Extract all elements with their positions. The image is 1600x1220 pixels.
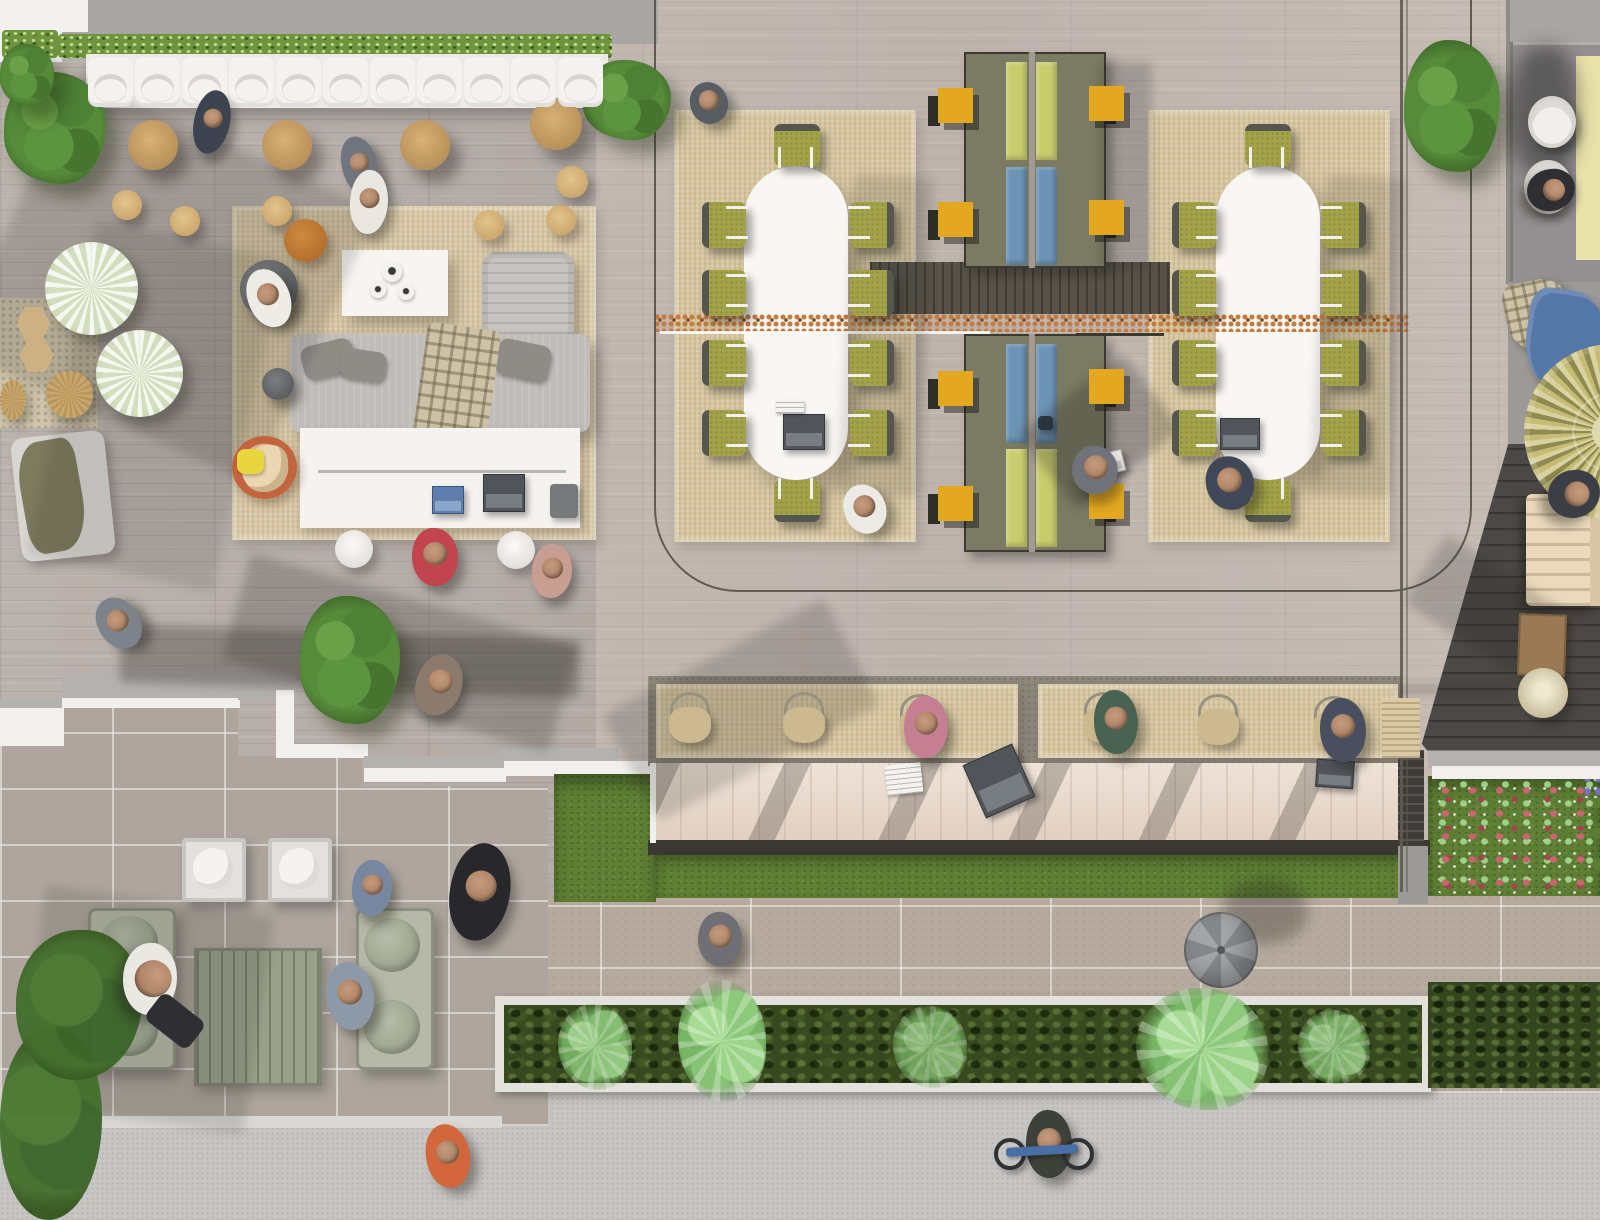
- doormat: [1382, 698, 1420, 758]
- bowl-3: [398, 284, 414, 300]
- bar-counter: [654, 763, 1402, 845]
- bench-chair-2: [135, 57, 180, 107]
- bench-chair-4: [229, 57, 274, 107]
- conference1-chair-l1: [702, 202, 746, 248]
- conference2-chair-top: [1245, 124, 1291, 166]
- conference2-chair-r2: [1322, 270, 1366, 316]
- right-room-rug: [1576, 56, 1600, 260]
- shadow-railing-h: [1398, 686, 1512, 692]
- conference2-chair-l3: [1172, 340, 1216, 386]
- yellow-stool-6: [938, 486, 973, 521]
- conference1-chair-l4: [702, 410, 746, 456]
- rattan-pouf-1: [46, 371, 93, 418]
- lounge-stool-2: [497, 531, 535, 569]
- tree-walkway: [300, 596, 400, 724]
- grass-strip: [654, 850, 1428, 898]
- terrace-stool-4: [474, 210, 504, 240]
- conference1-chair-r2: [850, 270, 894, 316]
- conference1-chair-r1: [850, 202, 894, 248]
- terrace-stool-2: [170, 206, 200, 236]
- tree-terrace-left-small: [0, 44, 54, 106]
- cafe-table-1: [128, 120, 178, 170]
- conference1-chair-r4: [850, 410, 894, 456]
- bench-chair-5: [276, 57, 321, 107]
- plaza-armchair-2: [268, 838, 332, 902]
- conference2-chair-l1: [1172, 202, 1216, 248]
- top-wall-right: [1508, 0, 1600, 44]
- person-bar-green: [1094, 690, 1138, 754]
- laptop-conference-2: [1220, 418, 1260, 450]
- dog-bed-pillow: [237, 449, 264, 474]
- yellow-stool-5: [938, 371, 973, 406]
- laptop-bar-2: [1315, 759, 1355, 790]
- conference2-chair-l2: [1172, 270, 1216, 316]
- conference1-chair-r3: [850, 340, 894, 386]
- planter-starplant-1: [558, 1004, 632, 1090]
- cafe-table-3: [400, 120, 450, 170]
- bench-chair-10: [511, 57, 556, 107]
- step-band-5: [364, 768, 506, 782]
- planter-starplant-5: [1298, 1010, 1370, 1084]
- right-step-band: [1432, 766, 1600, 779]
- yellow-stool-3: [1089, 86, 1124, 121]
- bowl-1: [382, 262, 402, 282]
- bowl-2: [370, 282, 386, 298]
- laptop-conference-1: [783, 414, 825, 450]
- table-groove: [318, 470, 566, 473]
- plaza-armchair-1: [182, 838, 246, 902]
- bike-wheel-rear: [1062, 1138, 1094, 1170]
- terrace-stool-3: [262, 196, 292, 226]
- conference1-chair-top: [774, 124, 820, 166]
- paper-bar: [885, 762, 924, 796]
- conference2-chair-r3: [1322, 340, 1366, 386]
- conference2-chair-l4: [1172, 410, 1216, 456]
- yellow-stool-7: [1089, 369, 1124, 404]
- aerial-floor-plan: [0, 0, 1600, 1220]
- person-bar-navy: [1320, 698, 1366, 762]
- right-round-table: [1518, 668, 1568, 718]
- coffee-table: [342, 250, 448, 316]
- railing-line-1: [1400, 0, 1403, 892]
- rattan-pouf-2: [0, 380, 26, 420]
- bench-chair-8: [417, 57, 462, 107]
- side-table-dark: [550, 484, 578, 518]
- laptop-lounge-blue: [432, 486, 464, 514]
- bar-chair-2: [780, 692, 828, 746]
- orange-pouf: [284, 219, 327, 262]
- planter-starplant-3: [893, 1006, 967, 1088]
- terrace-stool-5: [546, 205, 576, 235]
- dark-pouf-small: [262, 368, 294, 400]
- conference2-chair-r1: [1322, 202, 1366, 248]
- conference2-chair-r4: [1322, 410, 1366, 456]
- bar-chair-5: [1194, 694, 1242, 748]
- tree-office-right: [1404, 40, 1500, 172]
- step-band-1: [0, 708, 64, 746]
- conference1-chair-l3: [702, 340, 746, 386]
- paper-conference-1: [776, 400, 804, 413]
- bench-chair-6: [323, 57, 368, 107]
- yellow-stool-1: [938, 88, 973, 123]
- grass-left-block: [554, 774, 656, 902]
- plaza-sofa2-cushion-1: [364, 918, 420, 972]
- step-cap-6: [498, 748, 618, 762]
- patterned-pouf-1: [45, 242, 138, 335]
- shrub-bed-right: [1428, 982, 1600, 1088]
- yellow-stool-4: [1089, 200, 1124, 235]
- conference1-chair-bottom: [774, 480, 820, 522]
- bench-chair-11: [558, 57, 603, 107]
- terrace-stool-1: [112, 190, 142, 220]
- umbrella: [1184, 912, 1258, 988]
- step-band-4: [276, 744, 368, 758]
- laptop-lounge-gray: [483, 474, 525, 512]
- cafe-table-2: [262, 120, 312, 170]
- patterned-pouf-2: [96, 330, 183, 417]
- step-band-2-edge: [62, 698, 240, 708]
- conference1-chair-l2: [702, 270, 746, 316]
- room-tub-chair-1: [1528, 96, 1576, 148]
- plaid-throw: [412, 321, 501, 444]
- bar-counter-edge: [648, 840, 1430, 855]
- bar-chair-1: [666, 692, 714, 746]
- bench-chair-7: [370, 57, 415, 107]
- bench-chair-1: [88, 57, 133, 107]
- terrace-stool-6: [556, 166, 588, 198]
- bench-chair-9: [464, 57, 509, 107]
- sofa-pillow-2: [338, 347, 388, 383]
- lounge-stool-1: [335, 530, 373, 568]
- yellow-stool-2: [938, 202, 973, 237]
